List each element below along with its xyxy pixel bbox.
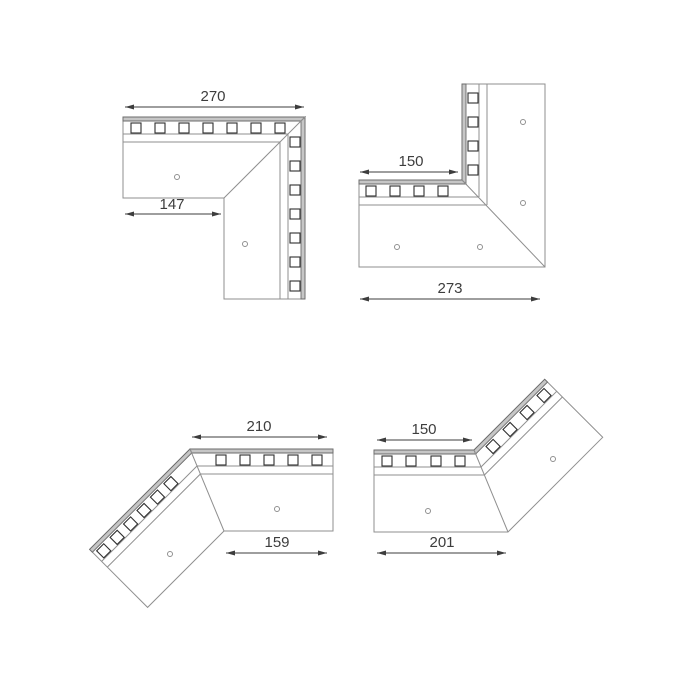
dimension-label: 147 [159, 196, 184, 213]
square-hole [155, 123, 165, 133]
square-hole [290, 161, 300, 171]
dimension-label: 270 [200, 88, 225, 105]
dimension-label: 210 [246, 418, 271, 435]
square-hole [290, 137, 300, 147]
screw-hole [426, 509, 431, 514]
outer-flange-strip [301, 117, 305, 299]
figure-corner-90-strips-inside: 150 273 [359, 84, 545, 299]
square-hole [290, 233, 300, 243]
square-hole [290, 257, 300, 267]
profile-outline [359, 84, 545, 267]
square-hole [312, 455, 322, 465]
square-hole [438, 186, 448, 196]
mounting-square-holes [216, 455, 322, 465]
technical-drawing: 270 147 150 273 [0, 0, 700, 700]
square-hole [290, 209, 300, 219]
square-hole [382, 456, 392, 466]
inner-flange-strip [359, 180, 466, 184]
angled-mounting-square-holes [97, 477, 178, 558]
square-hole [227, 123, 237, 133]
band-line [102, 466, 197, 561]
outer-flange-strip [190, 449, 333, 453]
mounting-square-holes [131, 123, 300, 291]
inner-flange-strip [474, 379, 548, 454]
square-hole [468, 165, 478, 175]
square-hole [468, 117, 478, 127]
inner-flange-strip [374, 450, 476, 454]
square-hole [179, 123, 189, 133]
square-hole [240, 455, 250, 465]
square-hole [414, 186, 424, 196]
square-hole [275, 123, 285, 133]
square-hole [455, 456, 465, 466]
screw-hole [478, 245, 483, 250]
square-hole [290, 185, 300, 195]
square-hole [264, 455, 274, 465]
square-hole [406, 456, 416, 466]
screw-hole [395, 245, 400, 250]
square-hole [251, 123, 261, 133]
screw-hole [521, 201, 526, 206]
dimension-label: 150 [398, 153, 423, 170]
profile-outline [90, 449, 333, 607]
square-hole [468, 93, 478, 103]
angled-mounting-square-holes [486, 388, 551, 453]
figure-corner-135-strips-inside: 150 201 [374, 379, 603, 553]
square-hole [131, 123, 141, 133]
dimension-label: 201 [429, 534, 454, 551]
square-hole [431, 456, 441, 466]
square-hole [366, 186, 376, 196]
mounting-square-holes [382, 456, 465, 466]
square-hole [468, 141, 478, 151]
miter-line [474, 450, 508, 532]
outer-flange-strip [123, 117, 305, 121]
screw-hole [275, 507, 280, 512]
square-hole [290, 281, 300, 291]
dimension-label: 159 [264, 534, 289, 551]
dimension-label: 150 [411, 421, 436, 438]
square-hole [288, 455, 298, 465]
square-hole [390, 186, 400, 196]
figure-corner-135-strips-outside: 210 159 [90, 418, 333, 607]
screw-hole [175, 175, 180, 180]
inner-flange-strip [462, 84, 466, 184]
square-hole [216, 455, 226, 465]
square-hole [203, 123, 213, 133]
miter-line [462, 180, 545, 267]
figure-corner-90-strips-outside: 270 147 [123, 88, 305, 299]
screw-hole [521, 120, 526, 125]
dimension-label: 273 [437, 280, 462, 297]
screw-hole [168, 552, 173, 557]
screw-hole [551, 457, 556, 462]
screw-hole [243, 242, 248, 247]
band-line [481, 391, 557, 467]
drawing-canvas: 270 147 150 273 [0, 0, 700, 700]
outer-flange-strip [90, 449, 192, 552]
